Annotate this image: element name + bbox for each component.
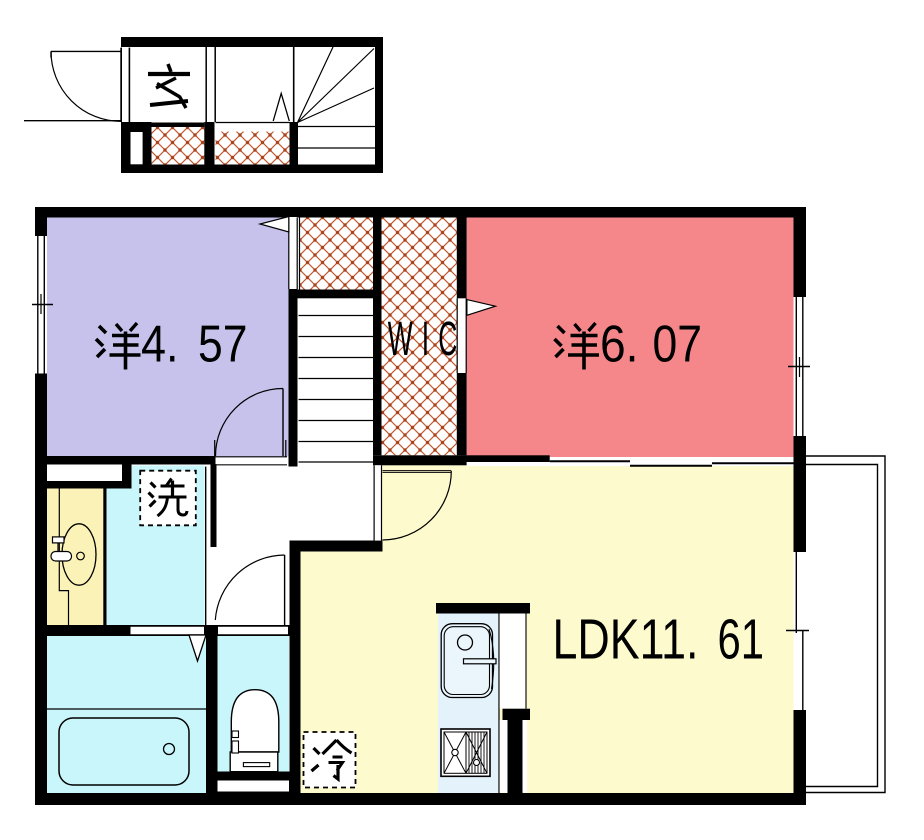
svg-text:LDK11.: LDK11. bbox=[553, 608, 699, 672]
svg-text:07: 07 bbox=[653, 316, 703, 374]
svg-text:6.: 6. bbox=[600, 316, 639, 374]
svg-text:4.: 4. bbox=[141, 316, 179, 374]
svg-text:61: 61 bbox=[718, 608, 765, 672]
svg-text:WIC: WIC bbox=[388, 313, 467, 366]
svg-text:57: 57 bbox=[198, 316, 248, 374]
